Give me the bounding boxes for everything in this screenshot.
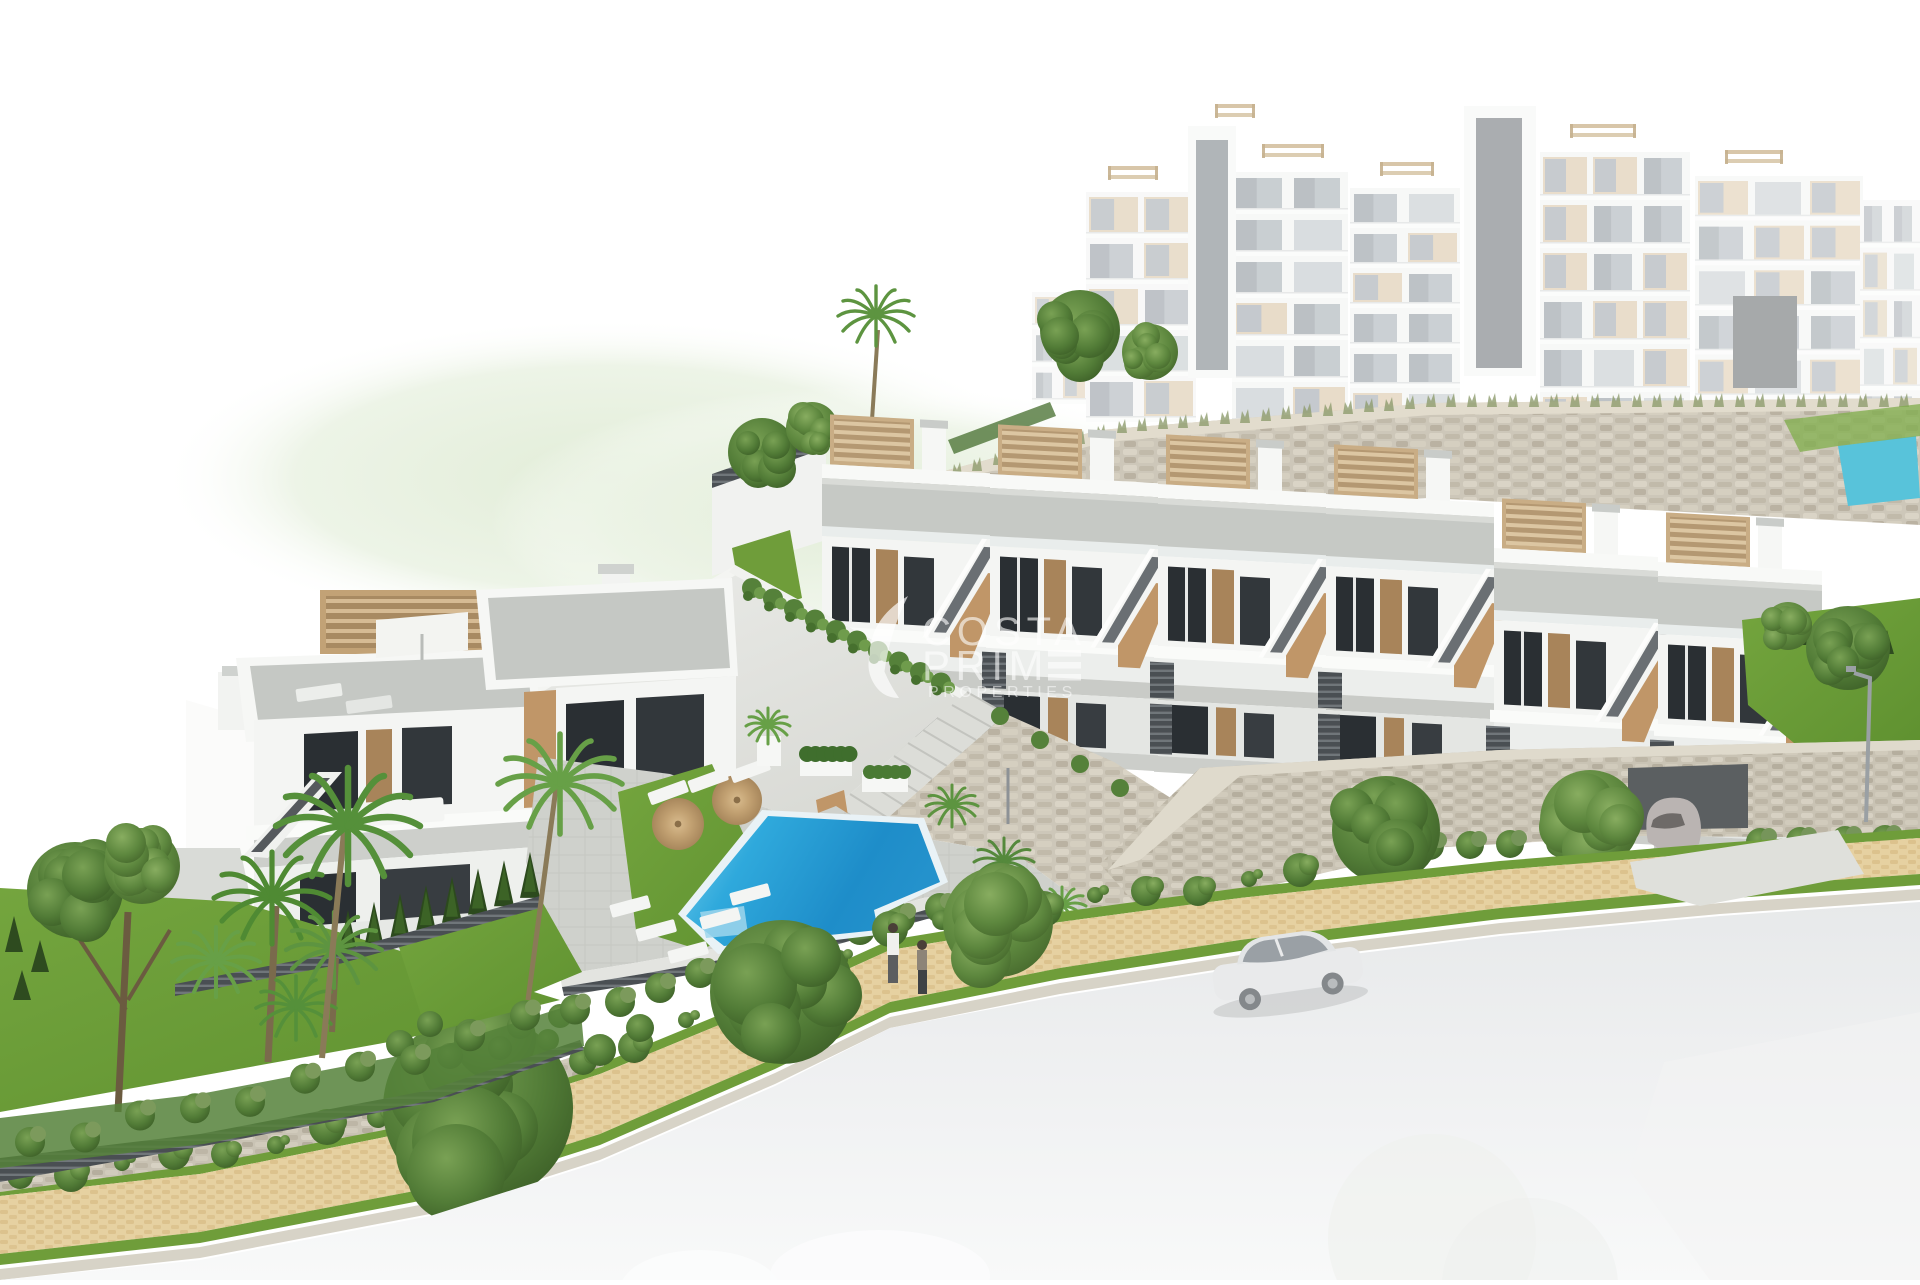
svg-text:PRIM: PRIM [922, 642, 1049, 689]
svg-text:PROPERTIES: PROPERTIES [928, 684, 1077, 701]
